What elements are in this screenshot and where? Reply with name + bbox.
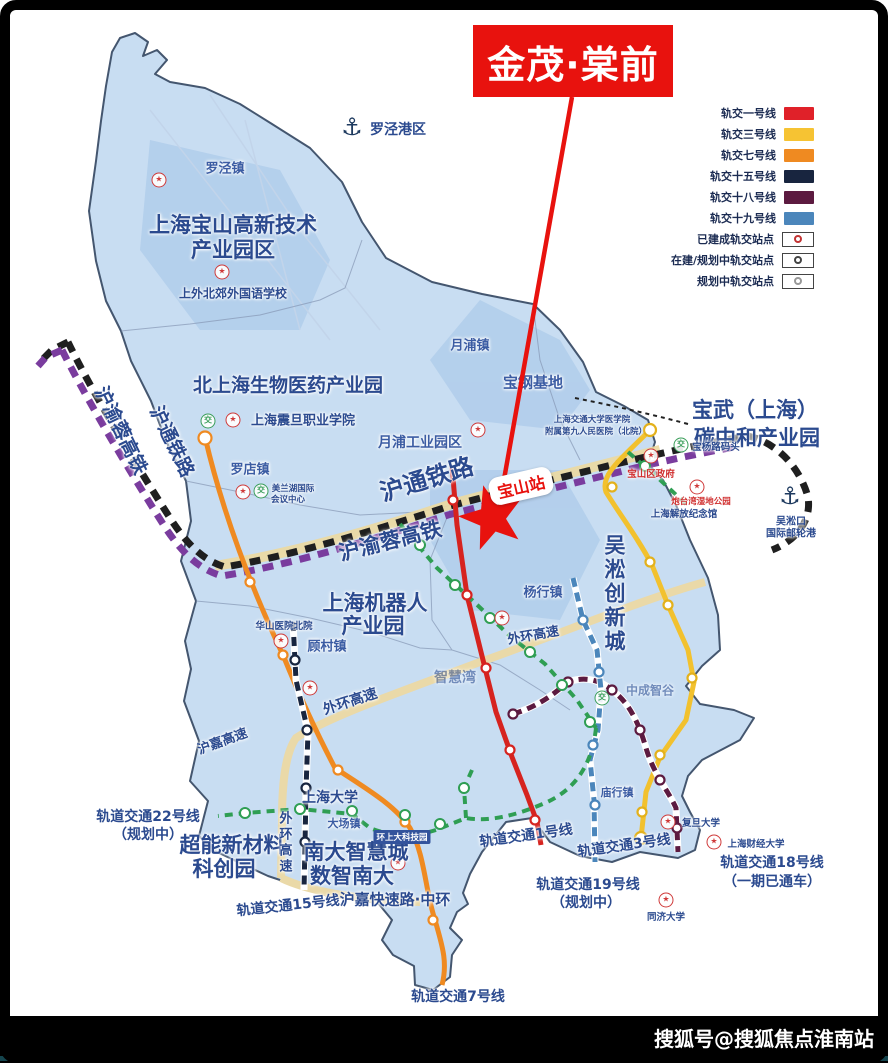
university-icon: ★ (659, 893, 674, 908)
label-town-yuepu: 月浦镇 (450, 335, 489, 354)
university-icon: ★ (661, 815, 676, 830)
school-icon: ★ (215, 265, 230, 280)
label-beijiao-school: 上外北郊外国语学校 (179, 285, 287, 302)
label-tongji-university: 同济大学 (647, 909, 685, 923)
legend-label: 已建成轨交站点 (697, 231, 774, 247)
bottom-bar: 搜狐号@搜狐焦点淮南站 (0, 1016, 888, 1063)
interchange-icon: 交 (595, 691, 610, 706)
label-huanshangda-badge: 环上大科技园 (373, 830, 430, 844)
legend-row-future-station: 规划中轨交站点 (697, 274, 814, 288)
legend: 轨交一号线 轨交三号线 轨交七号线 轨交十五号线 轨交十八号线 轨交十九号线 已… (671, 106, 814, 288)
label-shanghai-university: 上海大学 (302, 787, 358, 807)
label-gaoxin-park-2: 产业园区 (191, 234, 275, 264)
label-waihuan-road-3: 外环高速 (275, 811, 294, 875)
legend-label: 轨交十八号线 (710, 189, 776, 205)
label-town-miaohang: 庙行镇 (601, 784, 634, 800)
label-robot-park-2: 产业园 (342, 610, 405, 640)
legend-label: 轨交十九号线 (710, 210, 776, 226)
line7-swatch (784, 149, 814, 162)
label-line7: 轨道交通7号线 (411, 986, 505, 1006)
label-ninth-hospital-2: 附属第九人民医院（北院） (545, 425, 647, 437)
label-town-yanghang: 杨行镇 (523, 582, 562, 601)
label-wusongkou-port-2: 国际邮轮港 (766, 525, 816, 540)
label-fudan-university: 复旦大学 (682, 815, 720, 829)
label-baogang-base: 宝钢基地 (503, 372, 563, 393)
line15-swatch (784, 170, 814, 183)
project-banner: 金茂·棠前 (473, 25, 673, 97)
college-icon: ★ (226, 413, 241, 428)
hospital-icon: ★ (274, 634, 289, 649)
poi-icon: ★ (152, 173, 167, 188)
map-screenshot: 上海宝山高新技术 产业园区 北上海生物医药产业园 宝武（上海） 碳中和产业园 上… (0, 0, 888, 1063)
anchor-icon: ⚓ (341, 113, 363, 141)
label-yuepu-industrial-park: 月浦工业园区 (378, 432, 462, 452)
interchange-icon: 交 (254, 484, 269, 499)
planned-station-icon (782, 253, 814, 268)
bottom-accent-line (0, 1056, 888, 1061)
line18-swatch (784, 191, 814, 204)
park-icon: ★ (690, 480, 705, 495)
label-line19: 轨道交通19号线 (536, 874, 639, 894)
label-meilanhu-center-2: 会议中心 (271, 493, 305, 505)
label-ninth-hospital: 上海交通大学医学院 (554, 413, 631, 425)
university-icon: ★ (707, 835, 722, 850)
label-huashan-hospital: 华山医院北院 (255, 618, 312, 632)
label-baoshan-gov: 宝山区政府 (627, 466, 675, 480)
legend-label: 在建/规划中轨交站点 (671, 252, 774, 268)
legend-row-line3: 轨交三号线 (721, 127, 814, 141)
legend-row-line7: 轨交七号线 (721, 148, 814, 162)
interchange-icon: 交 (201, 414, 216, 429)
label-wusong-city: 吴淞创新城 (599, 534, 629, 654)
built-station-icon (782, 232, 814, 247)
label-town-gucun: 顾村镇 (307, 636, 346, 655)
legend-row-line19: 轨交十九号线 (710, 211, 814, 225)
line1-swatch (784, 107, 814, 120)
label-town-dachang: 大场镇 (328, 815, 361, 831)
future-station-icon (782, 274, 814, 289)
label-town-luojing: 罗泾镇 (205, 158, 244, 177)
legend-row-line18: 轨交十八号线 (710, 190, 814, 204)
legend-row-built-station: 已建成轨交站点 (697, 232, 814, 246)
label-zhihuiwan: 智慧湾 (434, 667, 476, 687)
watermark: 搜狐号@搜狐焦点淮南站 (654, 1023, 874, 1052)
line3-swatch (784, 128, 814, 141)
label-town-luodian: 罗店镇 (230, 459, 269, 478)
label-zhonghuan-road: 沪嘉快速路·中环 (340, 889, 451, 910)
label-chaoneng-park-2: 科创园 (193, 853, 256, 883)
government-star-icon: ★ (644, 449, 659, 464)
label-jiefang-memorial: 上海解放纪念馆 (651, 506, 718, 520)
legend-label: 轨交七号线 (721, 147, 776, 163)
label-line19-note: （规划中） (551, 892, 621, 912)
poi-icon: ★ (495, 611, 510, 626)
line19-swatch (784, 212, 814, 225)
legend-row-line1: 轨交一号线 (721, 106, 814, 120)
anchor-icon: ⚓ (779, 482, 801, 510)
legend-row-planned-station: 在建/规划中轨交站点 (671, 253, 814, 267)
label-nanda-city-2: 数智南大 (310, 860, 394, 890)
label-sufe-university: 上海财经大学 (727, 836, 784, 850)
label-baowu-park: 宝武（上海） (692, 394, 818, 424)
label-luojing-port: 罗泾港区 (370, 119, 426, 139)
label-line18-note: （一期已通车） (723, 871, 821, 891)
legend-row-line15: 轨交十五号线 (710, 169, 814, 183)
poi-icon: ★ (236, 485, 251, 500)
label-zhendan-college: 上海震旦职业学院 (251, 410, 355, 429)
interchange-icon: 交 (674, 438, 689, 453)
legend-label: 轨交一号线 (721, 105, 776, 121)
legend-label: 轨交三号线 (721, 126, 776, 142)
poi-icon: ★ (471, 423, 486, 438)
label-biomed-park: 北上海生物医药产业园 (193, 371, 383, 398)
legend-label: 轨交十五号线 (710, 168, 776, 184)
label-zhongcheng-valley: 中成智谷 (626, 682, 674, 699)
label-line22-note: （规划中） (113, 824, 183, 844)
label-line18: 轨道交通18号线 (720, 852, 823, 872)
legend-label: 规划中轨交站点 (697, 273, 774, 289)
label-baoyang-wharf: 宝杨路码头 (692, 439, 740, 453)
label-line22: 轨道交通22号线 (96, 806, 199, 826)
poi-icon: ★ (303, 681, 318, 696)
